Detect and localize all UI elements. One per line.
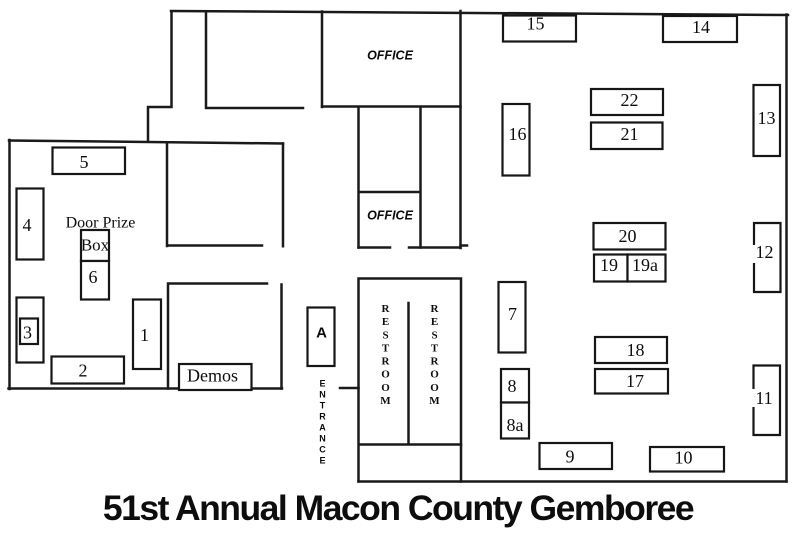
svg-text:R: R: [431, 356, 440, 368]
svg-text:5: 5: [80, 152, 89, 172]
svg-text:R: R: [382, 356, 391, 368]
svg-text:22: 22: [621, 90, 639, 110]
svg-text:OFFICE: OFFICE: [367, 49, 413, 63]
svg-text:4: 4: [23, 215, 32, 235]
svg-text:6: 6: [89, 267, 98, 287]
svg-text:8: 8: [508, 376, 517, 396]
svg-text:Door Prize: Door Prize: [66, 215, 136, 232]
svg-text:7: 7: [508, 304, 517, 324]
svg-text:Demos: Demos: [187, 366, 238, 386]
svg-text:17: 17: [626, 371, 644, 391]
svg-text:T: T: [431, 342, 439, 354]
svg-text:E: E: [319, 379, 325, 389]
svg-text:3: 3: [23, 323, 32, 343]
svg-text:21: 21: [621, 124, 639, 144]
svg-text:2: 2: [79, 361, 88, 381]
svg-text:T: T: [382, 342, 390, 354]
svg-text:Box: Box: [81, 236, 110, 255]
svg-text:14: 14: [692, 17, 710, 37]
svg-text:18: 18: [627, 340, 645, 360]
svg-text:1: 1: [140, 325, 149, 345]
svg-text:8a: 8a: [507, 415, 524, 435]
svg-text:19: 19: [600, 255, 618, 275]
svg-text:12: 12: [756, 242, 774, 262]
svg-text:R: R: [319, 412, 326, 422]
svg-text:O: O: [430, 382, 439, 394]
svg-text:15: 15: [527, 14, 545, 34]
svg-text:T: T: [320, 401, 326, 411]
svg-text:S: S: [431, 329, 437, 341]
svg-text:M: M: [429, 395, 440, 407]
svg-text:E: E: [431, 316, 438, 328]
svg-text:16: 16: [509, 124, 527, 144]
svg-text:O: O: [430, 369, 439, 381]
svg-text:C: C: [319, 445, 326, 455]
svg-text:N: N: [319, 434, 326, 444]
svg-text:E: E: [319, 456, 325, 466]
svg-text:11: 11: [755, 388, 772, 408]
svg-text:10: 10: [675, 448, 693, 468]
svg-text:A: A: [319, 423, 326, 433]
svg-text:9: 9: [566, 447, 575, 467]
svg-text:13: 13: [758, 108, 776, 128]
svg-text:OFFICE: OFFICE: [367, 209, 413, 223]
svg-text:S: S: [382, 329, 388, 341]
svg-text:N: N: [319, 390, 326, 400]
svg-text:M: M: [380, 395, 391, 407]
svg-text:A: A: [316, 325, 327, 342]
svg-text:19a: 19a: [632, 255, 658, 275]
svg-text:R: R: [382, 303, 391, 315]
svg-text:O: O: [381, 369, 390, 381]
svg-text:20: 20: [619, 226, 637, 246]
svg-text:E: E: [382, 316, 389, 328]
svg-text:O: O: [381, 382, 390, 394]
svg-text:R: R: [431, 303, 440, 315]
svg-text:51st Annual Macon County Gembo: 51st Annual Macon County Gemboree: [103, 488, 694, 528]
